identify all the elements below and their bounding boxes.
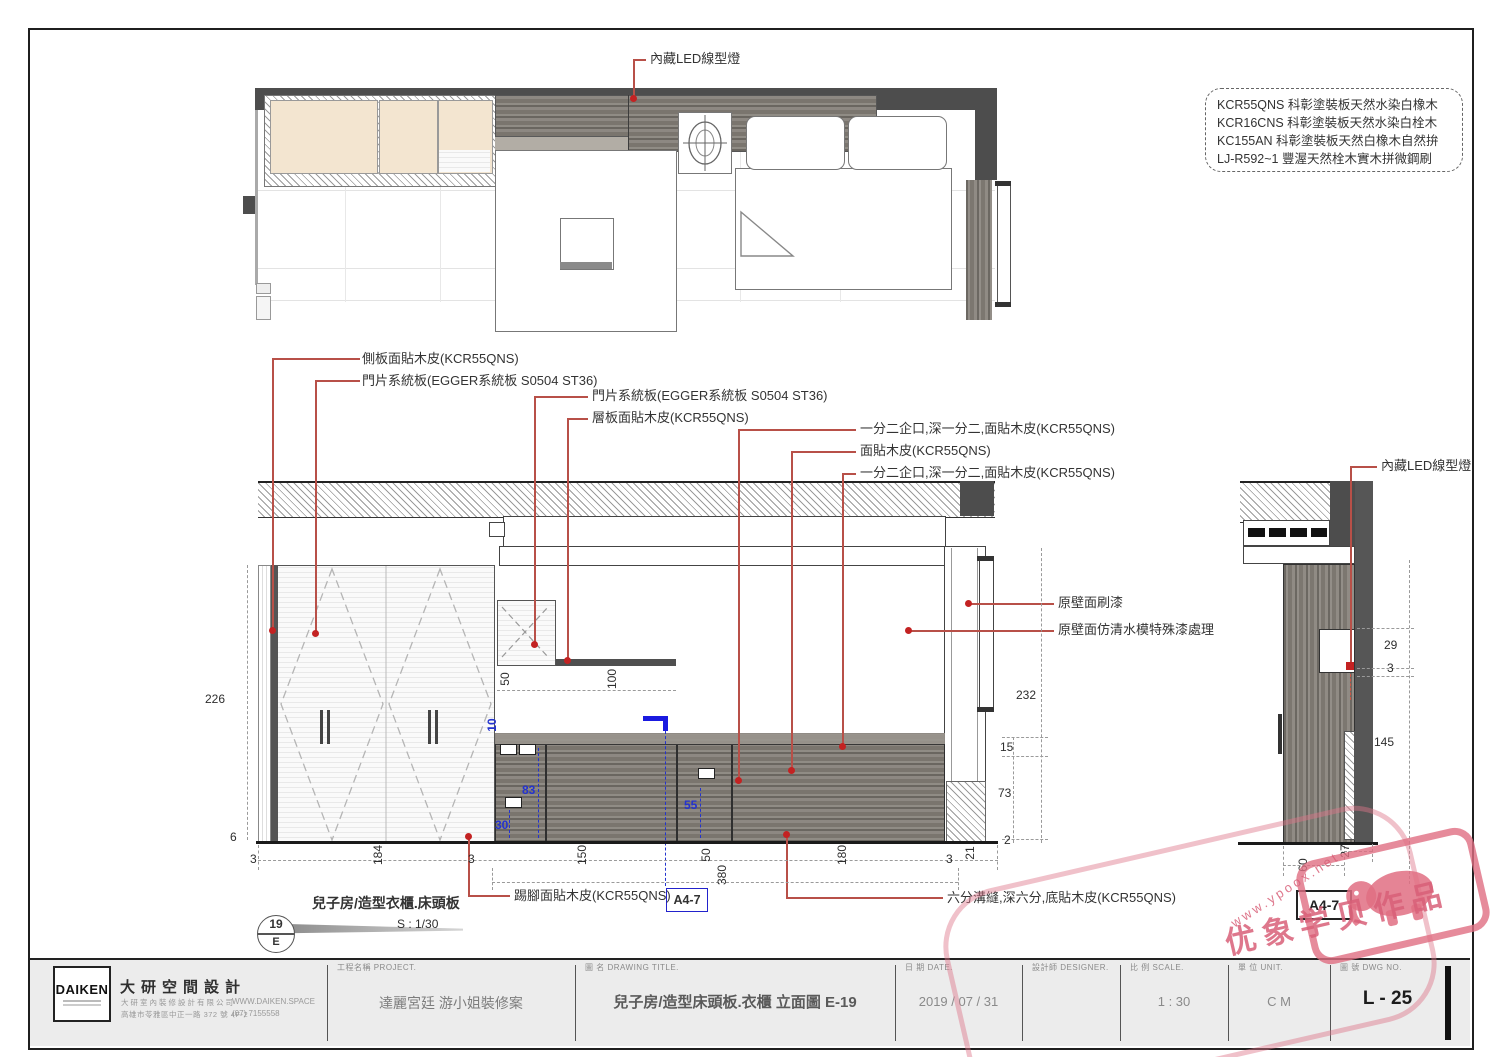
elev-wardrobe-side-panel	[258, 565, 271, 842]
dim-line	[247, 565, 248, 840]
label-shelf-veneer: 層板面貼木皮(KCR55QNS)	[592, 411, 749, 425]
material-notes-box: KCR55QNS 科彰塗裝板天然水染白橡木 KCR16CNS 科彰塗裝板天然水染…	[1205, 88, 1463, 172]
elev-headboard	[495, 733, 945, 843]
elev-curtain-box-end	[489, 522, 505, 537]
leader-line	[842, 473, 844, 746]
plan-fan-box	[678, 112, 732, 174]
note-line: KCR55QNS 科彰塗裝板天然水染白橡木	[1217, 96, 1462, 114]
company-phone: (07) 7155558	[232, 1009, 280, 1018]
company-logo-text: DAIKEN	[56, 982, 109, 997]
project-value: 達麗宮廷 游小姐裝修案	[327, 993, 575, 1013]
dim-line	[997, 845, 998, 870]
leader-line	[738, 429, 856, 431]
leader-dot	[531, 641, 538, 648]
label-door-system-2: 門片系統板(EGGER系統板 S0504 ST36)	[592, 389, 828, 403]
fan-icon	[679, 113, 731, 173]
leader-line	[468, 895, 510, 897]
leader-dot	[839, 743, 846, 750]
plan-headboard-strip	[495, 136, 628, 151]
plan-fixture	[256, 296, 271, 320]
label-tongue-groove-lower: 一分二企口,深一分二,面貼木皮(KCR55QNS)	[860, 466, 1115, 480]
elev-wardrobe-doors	[278, 565, 495, 842]
leader-line	[468, 838, 470, 896]
label-kickboard: 踢腳面貼木皮(KCR55QNS)	[514, 889, 671, 903]
plan-right-wall	[975, 88, 997, 180]
dim-line	[1002, 756, 1048, 757]
project-label: 工程名稱 PROJECT.	[337, 962, 416, 973]
dim-blue-10: 10	[485, 712, 499, 738]
outlet-icon	[698, 768, 715, 779]
elev-ceiling	[258, 481, 995, 518]
leader-dot	[269, 627, 276, 634]
dim-blue-30: 30	[495, 818, 508, 832]
dim-line	[258, 860, 998, 861]
leader-dot	[465, 833, 472, 840]
leader-line	[567, 418, 588, 420]
plan-fixture	[256, 283, 271, 294]
dim-bottom-1: 184	[371, 835, 385, 875]
plan-window-cap	[995, 302, 1011, 307]
dim-shelf-50: 50	[498, 664, 512, 694]
leader-line	[534, 396, 588, 398]
dim-bottom-6: 3	[946, 852, 953, 866]
leader-dot	[564, 657, 571, 664]
drawing-ref-bubble: 19 E	[257, 915, 295, 953]
company-logo-box: DAIKEN	[53, 966, 111, 1022]
wardrobe-handle	[320, 710, 323, 744]
note-line: KCR16CNS 科彰塗裝板天然水染白栓木	[1217, 114, 1462, 132]
dim-line	[258, 845, 259, 870]
detail-shelf-band	[1243, 546, 1355, 564]
elev-mid-cabinet	[497, 600, 556, 666]
dim-bottom-7: 21	[963, 833, 977, 873]
leader-line	[738, 429, 740, 780]
dim-line	[958, 868, 959, 890]
section-cut-line	[665, 731, 666, 886]
dim-bottom-2: 3	[468, 852, 475, 866]
plan-wardrobe-door	[379, 100, 438, 174]
plan-pedestal-edge	[560, 262, 612, 269]
label-tongue-groove-top: 一分二企口,深一分二,面貼木皮(KCR55QNS)	[860, 422, 1115, 436]
leader-dot	[905, 627, 912, 634]
dim-detail-29: 29	[1384, 638, 1397, 652]
led-strip-segment	[1248, 528, 1265, 537]
dim-line	[497, 690, 676, 691]
leader-line-dashed	[1350, 674, 1351, 700]
plan-pillow	[746, 116, 845, 170]
elev-curtain-box-upper	[503, 516, 946, 548]
dim-right-height: 232	[1016, 688, 1036, 702]
leader-line	[791, 451, 793, 770]
dim-blue-55: 55	[684, 798, 697, 812]
dim-bottom-3: 150	[575, 835, 589, 875]
wardrobe-door-swing-lines	[278, 566, 495, 843]
dim-line	[1409, 560, 1410, 884]
elev-floor-line	[256, 841, 998, 844]
dim-right-2: 2	[1004, 833, 1011, 847]
drawing-title-label: 圖 名 DRAWING TITLE.	[585, 962, 679, 973]
elev-window-frame	[979, 560, 994, 710]
dim-bottom-0: 3	[250, 852, 257, 866]
led-strip-segment	[1290, 528, 1307, 537]
plan-left-wall-line	[255, 110, 258, 285]
wardrobe-handle	[327, 710, 330, 744]
leader-line	[567, 418, 569, 660]
logo-rule	[63, 1000, 101, 1002]
dim-line	[1357, 668, 1414, 669]
cabinet-swing-lines	[498, 601, 554, 664]
plan-window-cap	[995, 181, 1011, 186]
leader-dot	[965, 600, 972, 607]
plan-wardrobe-shelf	[439, 150, 490, 172]
leader-line	[908, 630, 1054, 632]
label-face-veneer: 面貼木皮(KCR55QNS)	[860, 444, 991, 458]
label-door-system-1: 門片系統板(EGGER系統板 S0504 ST36)	[362, 374, 598, 388]
drawing-scale: S : 1/30	[397, 917, 438, 931]
detail-ceiling	[1240, 481, 1332, 523]
leader-dot	[312, 630, 319, 637]
dim-line	[1002, 737, 1048, 738]
leader-dot	[630, 95, 637, 102]
dim-right-73: 73	[998, 786, 1011, 800]
outlet-icon	[519, 744, 536, 755]
wardrobe-handle	[435, 710, 438, 744]
dim-detail-3: 3	[1387, 661, 1394, 675]
plan-window-frame	[997, 185, 1011, 305]
elev-headboard-top-strip	[495, 733, 945, 745]
drawing-sheet: 內藏LED線型燈 KCR55QNS 科彰塗裝板天然水染白橡木 KCR16CNS …	[0, 0, 1500, 1057]
label-wall-paint: 原壁面刷漆	[1058, 596, 1123, 610]
dim-line-blue	[538, 748, 539, 838]
dim-blue-83: 83	[522, 783, 535, 797]
leader-line	[633, 59, 635, 98]
detail-handle	[1278, 714, 1282, 754]
leader-line	[315, 380, 360, 382]
drawing-title-value: 兒子房/造型床頭板.衣櫃 立面圖 E-19	[575, 991, 895, 1012]
dim-line-blue	[700, 788, 701, 838]
elev-window-cap	[977, 556, 994, 561]
dim-shelf-100: 100	[605, 659, 619, 699]
section-ref-box-main: A4-7	[666, 888, 708, 912]
leader-dot	[1346, 662, 1354, 670]
leader-dot	[788, 767, 795, 774]
elev-headboard-divider	[676, 745, 678, 843]
leader-line	[791, 451, 856, 453]
drawing-ref-number: 19	[258, 916, 294, 933]
leader-dot	[783, 831, 790, 838]
led-strip-segment	[1269, 528, 1286, 537]
company-website: WWW.DAIKEN.SPACE	[232, 997, 315, 1006]
plan-right-wood-column	[966, 180, 992, 320]
company-address: 高雄市苓雅區中正一路 372 號 4F-2	[121, 1009, 248, 1020]
elev-headboard-divider	[731, 745, 733, 843]
logo-rule	[63, 1004, 101, 1006]
dim-line	[1041, 548, 1042, 843]
outlet-icon	[505, 797, 522, 808]
dim-bottom-5: 180	[835, 835, 849, 875]
label-side-panel: 側板面貼木皮(KCR55QNS)	[362, 352, 519, 366]
plan-wardrobe-door	[270, 100, 378, 174]
dim-line-blue	[509, 810, 510, 838]
dim-right-15: 15	[1000, 740, 1013, 754]
label-wall-special: 原壁面仿清水模特殊漆處理	[1058, 623, 1214, 637]
dim-left-height: 226	[205, 692, 225, 706]
company-full-name: 大研室內裝修設計有限公司	[121, 997, 235, 1008]
leader-dot	[735, 777, 742, 784]
plan-headboard-divider	[628, 95, 629, 150]
led-strip-segment	[1311, 528, 1327, 537]
outlet-icon	[500, 744, 517, 755]
plan-pillow	[848, 116, 947, 170]
company-name: 大研空間設計	[120, 976, 246, 997]
dim-line	[492, 868, 493, 890]
label-led-top: 內藏LED線型燈	[650, 52, 740, 66]
note-line: LJ-R592~1 豐渥天然栓木實木拼微鋼刷	[1217, 150, 1462, 168]
leader-line	[786, 897, 943, 899]
leader-line	[1350, 466, 1352, 666]
leader-line	[842, 473, 856, 475]
leader-line	[633, 59, 646, 61]
leader-line	[786, 836, 788, 898]
leader-line	[272, 358, 274, 630]
leader-line	[315, 380, 317, 633]
note-line: KC155AN 科彰塗裝板天然白橡木自然拚	[1217, 132, 1462, 150]
plan-blanket-fold	[739, 210, 795, 258]
label-led-detail: 內藏LED線型燈	[1381, 459, 1471, 473]
drawing-title: 兒子房/造型衣櫃.床頭板	[312, 896, 460, 911]
leader-line	[1350, 466, 1377, 468]
section-cut-mark	[663, 721, 668, 731]
title-block-end-bar	[1445, 966, 1451, 1040]
leader-line	[272, 358, 360, 360]
dim-bottom-total: 380	[715, 855, 729, 895]
dim-line	[1357, 628, 1414, 629]
dim-bottom-4: 50	[699, 835, 713, 875]
dim-detail-145: 145	[1374, 735, 1394, 749]
elev-ceiling-block	[960, 481, 994, 516]
dim-line	[1357, 676, 1414, 677]
elev-window-cap	[977, 707, 994, 712]
section-ref-main-text: A4-7	[673, 893, 700, 907]
wardrobe-handle	[428, 710, 431, 744]
dim-left-base: 6	[230, 830, 237, 844]
detail-wall-column	[1355, 481, 1373, 844]
leader-line	[534, 396, 536, 644]
elev-headboard-divider	[545, 745, 547, 843]
drawing-ref-letter: E	[258, 935, 294, 950]
